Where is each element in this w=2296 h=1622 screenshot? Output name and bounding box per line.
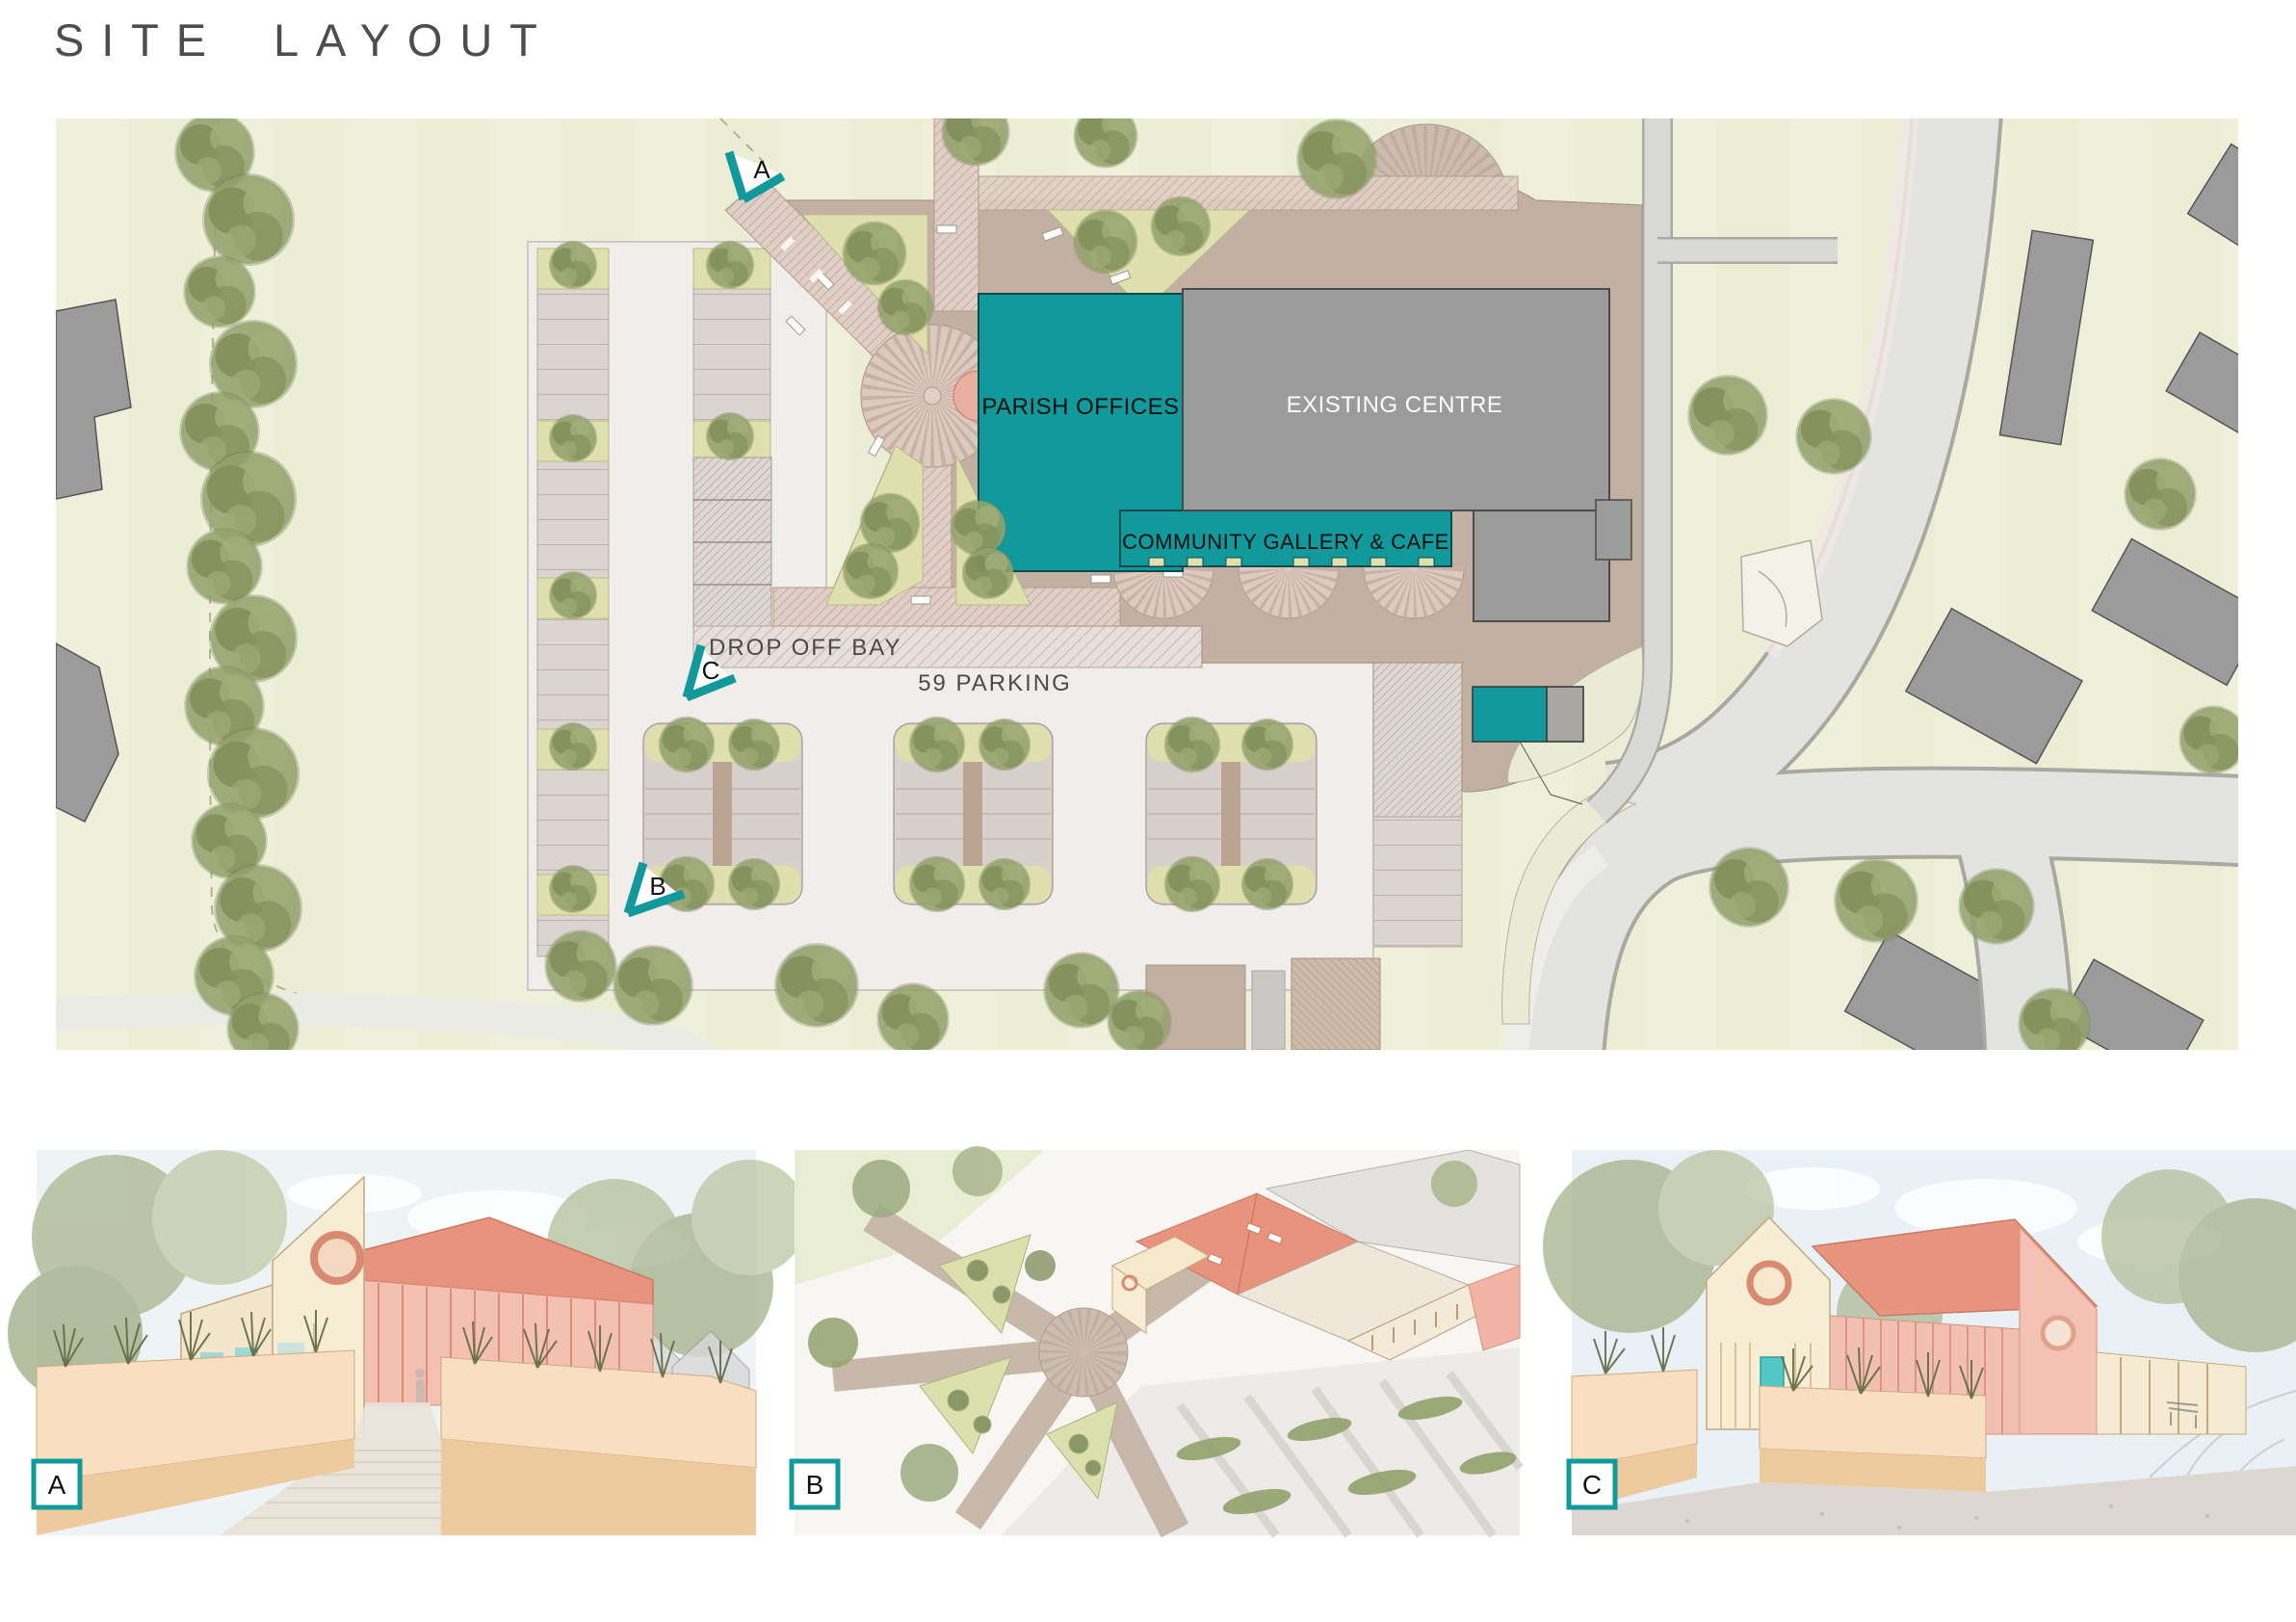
site-plan: PARISH OFFICES EXISTING CENTRE COMMUNITY… [56,118,2238,1050]
round-window [314,1235,360,1281]
render-label-c-letter: C [1582,1470,1602,1500]
render-c: C [1572,1150,2296,1535]
render-b-image: B [795,1150,1520,1535]
view-marker-b-letter: B [649,872,665,901]
render-label-c: C [1569,1461,1615,1507]
render-label-a: A [34,1461,80,1507]
render-b: B [795,1150,1520,1535]
render-label-a-letter: A [48,1470,66,1500]
render-a-image: A [37,1150,756,1535]
render-label-b: B [792,1461,838,1507]
site-plan-drawing: PARISH OFFICES EXISTING CENTRE COMMUNITY… [56,118,2238,1050]
parking-count-label: 59 PARKING [918,670,1072,696]
existing-centre-label: EXISTING CENTRE [1287,392,1503,418]
drop-off-bay-label: DROP OFF BAY [709,635,901,661]
render-c-image: C [1572,1150,2296,1535]
round-window-1 [1750,1264,1788,1302]
page-title: SITE LAYOUT [54,13,555,66]
existing-annex [1596,500,1631,560]
figure [415,1369,425,1406]
view-marker-a-letter: A [753,155,770,184]
render-a: A [37,1150,756,1535]
planter-right [441,1357,756,1535]
round-window-2 [2043,1318,2074,1348]
existing-centre-wing [1474,510,1609,621]
render-label-b-letter: B [806,1470,824,1500]
view-marker-c-letter: C [702,656,720,685]
proposed-outbuilding [1473,687,1547,742]
existing-outbuilding [1547,687,1583,742]
parish-offices-label: PARISH OFFICES [981,394,1179,420]
community-gallery-label: COMMUNITY GALLERY & CAFE [1122,530,1449,554]
